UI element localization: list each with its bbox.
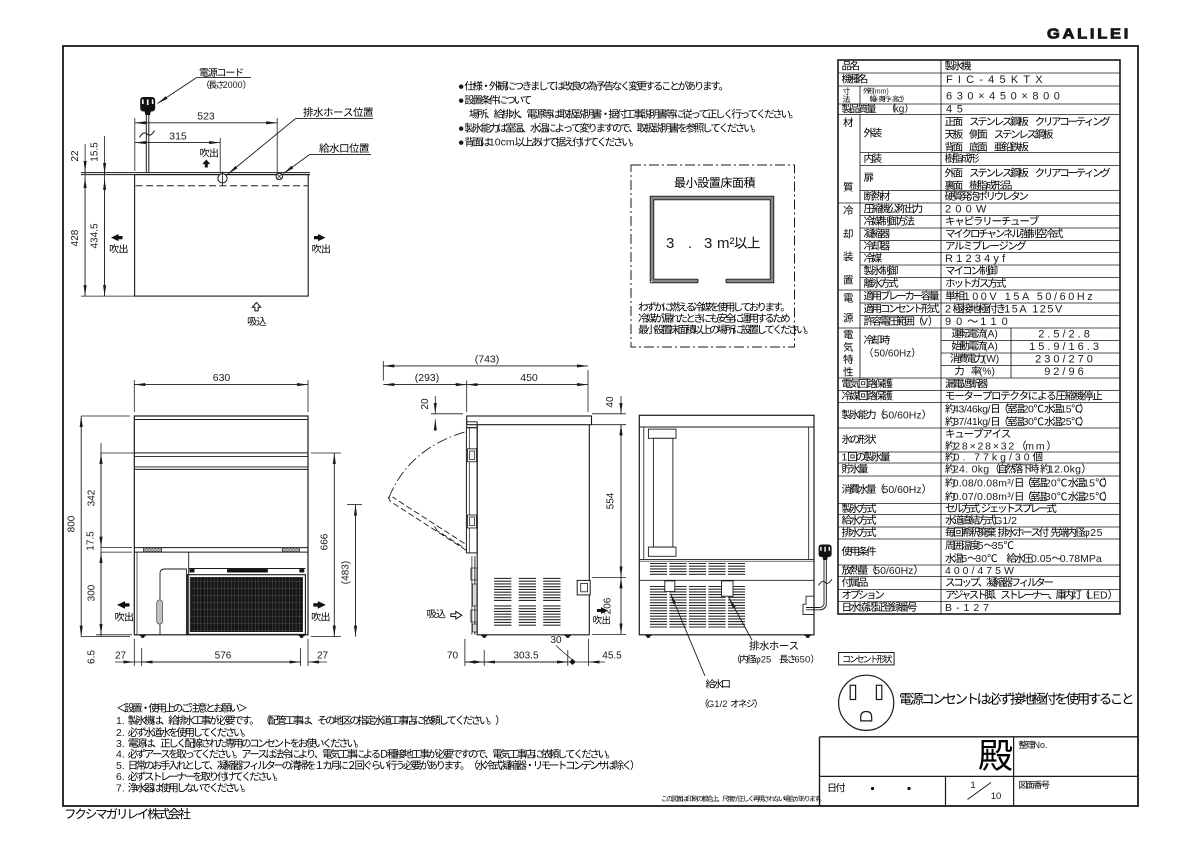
svg-text:15: 15 <box>1060 403 1071 415</box>
svg-text:50/60Hz: 50/60Hz <box>874 348 911 359</box>
svg-text:30: 30 <box>1023 416 1034 428</box>
svg-text:(A): (A) <box>984 342 998 353</box>
svg-text:kg: kg <box>894 104 905 115</box>
svg-text:1: 1 <box>842 452 848 464</box>
svg-text:25: 25 <box>1083 491 1095 503</box>
svg-text:G1/2: G1/2 <box>994 515 1017 527</box>
svg-text:43/46kg/: 43/46kg/ <box>953 403 991 415</box>
svg-text:12.0kg: 12.0kg <box>1048 464 1081 476</box>
svg-text:50/60Hz: 50/60Hz <box>883 409 922 421</box>
svg-text:5: 5 <box>961 553 967 565</box>
svg-text:×: × <box>888 96 892 103</box>
svg-text:90: 90 <box>945 316 967 328</box>
svg-text:25: 25 <box>1060 416 1071 428</box>
svg-text:(mm): (mm) <box>872 88 888 95</box>
svg-text:50/60Hz: 50/60Hz <box>874 565 913 577</box>
svg-text:LED: LED <box>1087 590 1108 602</box>
svg-text:30: 30 <box>975 553 987 565</box>
svg-text:20: 20 <box>1045 477 1057 489</box>
svg-text:50/60Hz: 50/60Hz <box>883 484 922 496</box>
svg-text:110: 110 <box>980 316 1013 328</box>
svg-text:100V 15A 50/60Hz: 100V 15A 50/60Hz <box>964 291 1096 303</box>
svg-text:0.08/0.08m³/: 0.08/0.08m³/ <box>953 477 1014 489</box>
svg-text:(W): (W) <box>983 354 999 365</box>
svg-text:37/41kg/: 37/41kg/ <box>953 416 991 428</box>
svg-text:(A): (A) <box>984 329 998 340</box>
svg-text:15: 15 <box>1083 477 1095 489</box>
svg-text:0.07/0.08m³/: 0.07/0.08m³/ <box>953 491 1014 503</box>
svg-text:5: 5 <box>978 540 984 552</box>
svg-text:φ25: φ25 <box>1083 527 1103 539</box>
svg-text:20: 20 <box>1023 403 1034 415</box>
svg-text:FIC-45KTX: FIC-45KTX <box>946 74 1048 86</box>
svg-text:30: 30 <box>1045 491 1057 503</box>
svg-text:R1234yf: R1234yf <box>945 253 1008 265</box>
svg-text:V: V <box>921 316 928 328</box>
svg-text:0. 77kg/30: 0. 77kg/30 <box>954 452 1033 464</box>
svg-text:15A 125V: 15A 125V <box>1004 304 1064 316</box>
svg-text:400/475W: 400/475W <box>945 565 1017 577</box>
svg-text:B-127: B-127 <box>945 602 993 614</box>
svg-text:2.5/2.8: 2.5/2.8 <box>1038 329 1093 341</box>
svg-text:(%): (%) <box>979 367 995 378</box>
svg-text:45: 45 <box>946 104 967 116</box>
svg-text:230/270: 230/270 <box>1035 354 1096 366</box>
svg-text:×: × <box>874 96 878 103</box>
svg-text:0.78MPa: 0.78MPa <box>1060 553 1102 565</box>
svg-text:630×450×800: 630×450×800 <box>946 91 1065 103</box>
svg-text:35: 35 <box>992 540 1004 552</box>
svg-text:24. 0kg: 24. 0kg <box>953 464 990 476</box>
svg-text:200W: 200W <box>945 204 991 216</box>
svg-text:15.9/16.3: 15.9/16.3 <box>1029 341 1102 353</box>
svg-text:92/96: 92/96 <box>1044 366 1087 378</box>
svg-text:0.05: 0.05 <box>1031 553 1052 565</box>
svg-text:2: 2 <box>945 304 953 316</box>
